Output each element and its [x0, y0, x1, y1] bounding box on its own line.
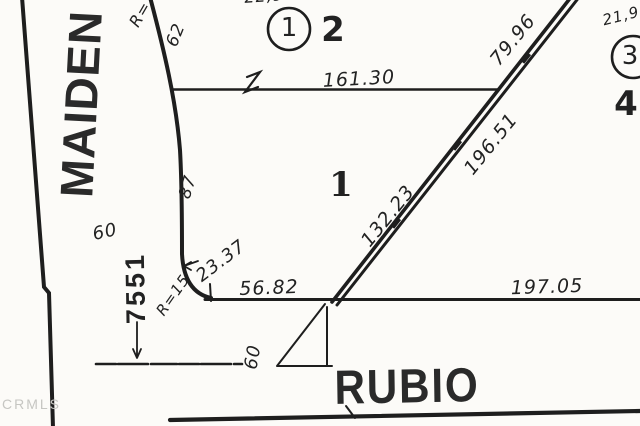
lot-2-number: 2: [321, 10, 345, 50]
corner-tick: [210, 284, 211, 301]
parcel-1-number: 1: [329, 165, 353, 205]
lot-3-circle-number: 3: [622, 41, 639, 71]
lot-1-circle-number: 1: [281, 13, 298, 43]
diagonal-row-line-a: [332, 0, 575, 302]
crmls-watermark: CRMLS: [2, 396, 61, 412]
street-name-maiden: MAIDEN: [49, 9, 113, 199]
house-number-arrow: [133, 322, 141, 358]
dim-north-line: 161.30: [322, 66, 396, 92]
maiden-west-line: [22, 0, 53, 426]
house-number: 7551: [120, 252, 152, 325]
intersection-triangle: [277, 304, 332, 366]
diagonal-row-line-b: [337, 0, 580, 305]
street-name-rubio: RUBIO: [334, 358, 480, 416]
dim-south-line-west: 56.82: [239, 276, 299, 300]
lot-4-number: 4: [614, 84, 638, 124]
dim-rubio-width: 60: [240, 343, 265, 371]
dim-south-line-east: 197.05: [510, 275, 583, 300]
parcel-map: MAIDEN RUBIO 1 2 3 4 1 7551 161.30 79.96…: [0, 0, 640, 426]
